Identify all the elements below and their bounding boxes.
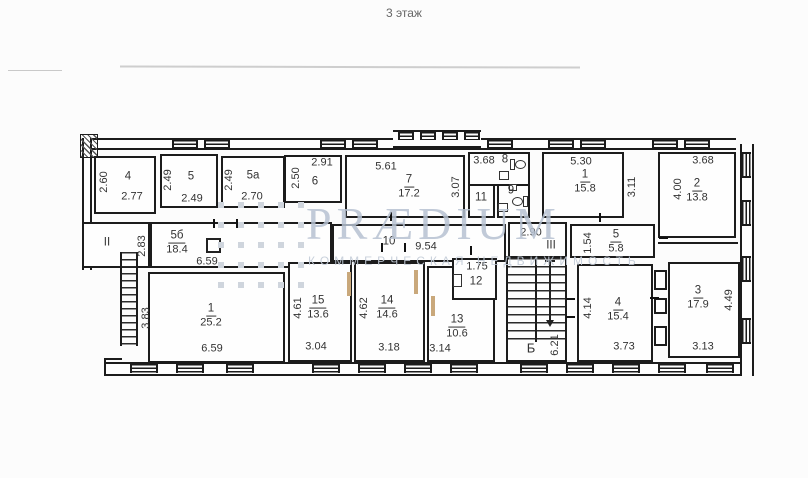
fire-ladder-hatch	[120, 252, 138, 346]
dim-r4-width: 2.77	[121, 191, 142, 204]
watermark-dot	[238, 262, 244, 268]
dim-r1bot-width: 6.59	[201, 343, 222, 356]
stair-center-rail	[535, 258, 537, 342]
room-5b-number: 5б	[169, 230, 186, 244]
room-5-number: 5	[188, 170, 194, 183]
dim-r13-width: 3.14	[429, 343, 450, 356]
watermark-dot	[238, 282, 244, 288]
room-1-bottom-number: 1	[206, 303, 216, 317]
window-symbol	[464, 132, 480, 140]
vent-shaft-box	[654, 270, 667, 290]
watermark-dot	[258, 202, 264, 208]
window-symbol	[706, 364, 734, 373]
room-1-top-number: 1	[580, 169, 590, 183]
dim-r5a-height: 2.49	[223, 169, 235, 190]
dim-r5-height: 2.49	[162, 169, 174, 190]
watermark-dot	[278, 282, 284, 288]
stair-direction-arrow	[549, 262, 551, 320]
toilet-icon	[515, 160, 526, 169]
watermark-dot	[258, 222, 264, 228]
dim-r3-height: 4.49	[723, 289, 735, 310]
watermark-dot	[258, 262, 264, 268]
watermark-dot	[298, 202, 304, 208]
door-tick	[650, 297, 659, 299]
watermark-dot	[218, 262, 224, 268]
door-leaf	[414, 270, 418, 294]
sink-icon	[499, 171, 509, 180]
room-4-bottom-number: 4	[613, 297, 623, 311]
window-symbol	[172, 140, 198, 149]
dim-r2-width: 3.68	[692, 155, 713, 168]
watermark-dot	[298, 262, 304, 268]
watermark-dot	[298, 242, 304, 248]
arrow-down-icon	[546, 320, 554, 327]
room-3-label: 3 17.9	[687, 285, 708, 312]
window-symbol	[548, 140, 574, 149]
room-14-number: 14	[379, 295, 396, 309]
page-title: 3 этаж	[0, 6, 808, 20]
floor-plan-page: 3 этаж	[0, 0, 808, 478]
dim-r4bot-height: 4.14	[582, 297, 594, 318]
window-symbol	[312, 364, 340, 373]
closet-box	[453, 274, 462, 287]
dim-r14-height: 4.62	[358, 297, 370, 318]
room-4-bottom-area: 15.4	[607, 311, 628, 324]
wall-segment	[104, 358, 122, 360]
wall-segment	[104, 358, 106, 376]
vent-shaft-box	[654, 326, 667, 346]
window-symbol	[580, 140, 606, 149]
window-symbol	[358, 364, 386, 373]
watermark-brand: PRÆDIUM	[306, 197, 561, 250]
room-2-number: 2	[692, 178, 702, 192]
wall-segment	[658, 242, 738, 244]
watermark-dot	[258, 282, 264, 288]
watermark-dot	[298, 282, 304, 288]
room-1-top-label: 1 15.8	[574, 169, 595, 196]
window-symbol	[226, 364, 254, 373]
room-8-number: 8	[502, 153, 508, 166]
watermark-dot	[218, 202, 224, 208]
door-tick	[599, 213, 601, 222]
watermark-dot	[218, 282, 224, 288]
window-symbol	[420, 132, 436, 140]
room-13-label: 13 10.6	[446, 314, 467, 341]
window-symbol	[204, 140, 230, 149]
door-tick	[566, 298, 575, 300]
room-5-mid-number: 5	[611, 229, 621, 243]
watermark-dot	[278, 242, 284, 248]
window-symbol	[742, 256, 751, 282]
window-symbol	[487, 140, 513, 149]
room-13-number: 13	[449, 314, 466, 328]
room-2-label: 2 13.8	[686, 178, 707, 205]
window-symbol	[398, 132, 414, 140]
window-symbol	[684, 140, 710, 149]
dim-r15-width: 3.04	[305, 341, 326, 354]
door-tick	[213, 219, 215, 228]
dim-r2-height: 4.00	[672, 178, 684, 199]
window-symbol	[450, 364, 478, 373]
window-symbol	[658, 364, 686, 373]
dim-r1top-height: 3.11	[626, 177, 638, 198]
dim-r5b-height: 2.83	[136, 235, 148, 256]
dim-r5-width: 2.49	[181, 193, 202, 206]
room-4-number: 4	[125, 170, 131, 183]
watermark-dot	[238, 222, 244, 228]
dim-r5mid-height: 1.54	[582, 232, 594, 253]
room-3-area: 17.9	[687, 299, 708, 312]
room-2-area: 13.8	[686, 192, 707, 205]
watermark-dot	[278, 202, 284, 208]
window-symbol	[566, 364, 594, 373]
window-symbol	[130, 364, 158, 373]
window-symbol	[176, 364, 204, 373]
watermark-dot	[258, 242, 264, 248]
dim-r4-height: 2.60	[98, 171, 110, 192]
watermark-dot	[238, 202, 244, 208]
room-3-number: 3	[693, 285, 703, 299]
room-4-bottom-label: 4 15.4	[607, 297, 628, 324]
window-symbol	[442, 132, 458, 140]
watermark-dot	[238, 242, 244, 248]
window-symbol	[652, 140, 678, 149]
window-symbol	[352, 140, 378, 149]
room-5b-label: 5б 18.4	[166, 230, 187, 257]
corridor-II-number: II	[104, 236, 110, 249]
dim-stair-height: 6.21	[549, 334, 561, 355]
dim-r1bot-height: 3.83	[140, 307, 152, 328]
chimney-hatch	[80, 134, 98, 158]
watermark-subtitle: КОММЕРЧЕСКАЯ НЕДВИЖИМОСТЬ	[308, 254, 641, 268]
window-symbol	[520, 364, 548, 373]
watermark-dot	[218, 242, 224, 248]
room-1-top-area: 15.8	[574, 183, 595, 196]
door-leaf	[431, 296, 435, 316]
door-tick	[566, 316, 575, 318]
stairwell-B-number: Б	[527, 342, 536, 357]
dim-r4bot-width: 3.73	[613, 341, 634, 354]
dim-r6-height: 2.50	[290, 167, 302, 188]
dim-r8-width: 3.68	[473, 155, 494, 168]
watermark-dot	[278, 262, 284, 268]
room-14-label: 14 14.6	[376, 295, 397, 322]
room-5a-number: 5а	[247, 169, 260, 182]
window-symbol	[742, 200, 751, 226]
window-symbol	[742, 152, 751, 178]
room-13-area: 10.6	[446, 328, 467, 341]
room-15-area: 13.6	[307, 309, 328, 322]
dim-r6-width: 2.91	[311, 157, 332, 170]
room-6-number: 6	[312, 175, 318, 188]
window-symbol	[612, 364, 640, 373]
watermark-dot	[218, 222, 224, 228]
scan-artifact-line	[8, 70, 62, 71]
dim-r5b-width: 6.59	[196, 256, 217, 269]
dim-r1top-width: 5.30	[570, 156, 591, 169]
room-9-number: 9	[508, 184, 514, 197]
room-5-mid-label: 5 5.8	[608, 229, 623, 256]
dim-r14-width: 3.18	[378, 342, 399, 355]
room-14-area: 14.6	[376, 309, 397, 322]
room-1-bottom-area: 25.2	[200, 317, 221, 330]
window-symbol	[404, 364, 432, 373]
scan-artifact-line	[120, 66, 580, 69]
dim-r7-width: 5.61	[375, 161, 396, 174]
watermark-dot	[278, 222, 284, 228]
door-leaf	[347, 272, 351, 296]
room-12-number: 12	[470, 275, 483, 288]
dim-r7-height: 3.07	[450, 176, 462, 197]
vent-shaft-box	[654, 298, 667, 314]
door-tick	[659, 237, 668, 239]
window-symbol	[742, 318, 751, 344]
room-5b-area: 18.4	[166, 244, 187, 257]
dim-r3-width: 3.13	[692, 341, 713, 354]
watermark-dot	[298, 222, 304, 228]
window-symbol	[320, 140, 346, 149]
room-7-number: 7	[404, 174, 414, 188]
